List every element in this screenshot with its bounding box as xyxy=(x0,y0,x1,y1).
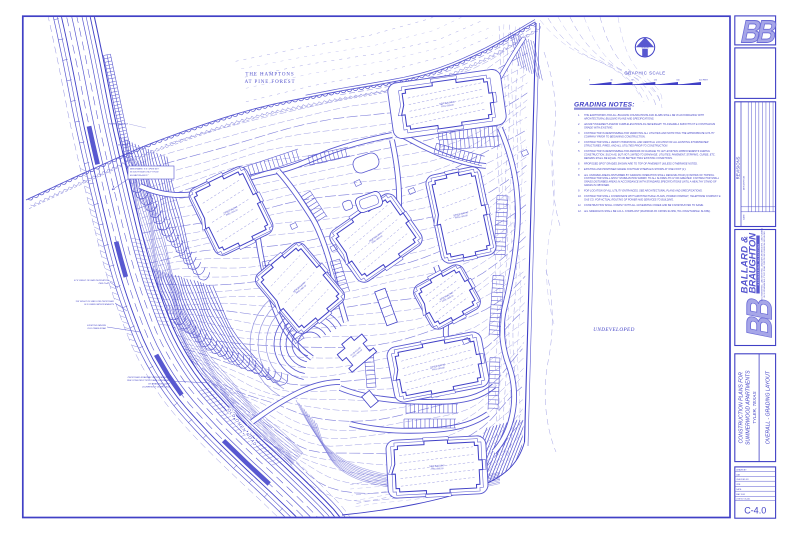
svg-text:1.: 1. xyxy=(578,114,580,117)
svg-text:AT PINE FOREST: AT PINE FOREST xyxy=(245,80,296,85)
svg-text:CONSTRUCTION SHALL COMPLY WITH: CONSTRUCTION SHALL COMPLY WITH ALL GOVER… xyxy=(584,204,704,207)
svg-text:REVISIONS: REVISIONS xyxy=(735,156,740,179)
svg-text:MAY 2005: MAY 2005 xyxy=(736,493,745,496)
svg-text:SUMMERWOOD APARTMENTS: SUMMERWOOD APARTMENTS xyxy=(746,370,752,445)
svg-text:(CURRENTLY OUT TO BID): (CURRENTLY OUT TO BID) xyxy=(142,387,170,389)
svg-text:EXISTING PAVING: EXISTING PAVING xyxy=(87,324,106,327)
svg-text:STRUCTURES, PIPES, AND ALL UTI: STRUCTURES, PIPES, AND ALL UTILITIES PRI… xyxy=(584,145,668,148)
svg-text:FOR LOCATION OF ALL UTILITY EN: FOR LOCATION OF ALL UTILITY ENTRANCES, S… xyxy=(584,190,703,193)
svg-text:5.: 5. xyxy=(578,150,580,153)
svg-text:115' RIGHT OF WAY FOR PROPOSED: 115' RIGHT OF WAY FOR PROPOSED xyxy=(75,300,114,303)
svg-text:C-4.0: C-4.0 xyxy=(744,506,766,516)
svg-text:TYLER, TEXAS: TYLER, TEXAS xyxy=(752,391,757,424)
svg-text:GAS CO. FOR ACTUAL ROUTING OF: GAS CO. FOR ACTUAL ROUTING OF POWER AND … xyxy=(584,199,674,202)
svg-text:BY BRANNON CORP.: BY BRANNON CORP. xyxy=(148,382,170,385)
svg-text:ALL SIDEWALKS SHALL BE A.D.A.: ALL SIDEWALKS SHALL BE A.D.A. COMPLIANT … xyxy=(583,210,711,213)
svg-text:11.: 11. xyxy=(578,204,582,207)
svg-text:GRASS IS OBTAINED.: GRASS IS OBTAINED. xyxy=(584,184,610,187)
svg-text:CHECKED BY:: CHECKED BY: xyxy=(736,479,749,481)
svg-text:OVERALL - GRADING LAYOUT: OVERALL - GRADING LAYOUT xyxy=(765,370,771,444)
svg-text:CONSTRUCTION PLANS FOR: CONSTRUCTION PLANS FOR xyxy=(739,372,745,444)
svg-text:IN SOUTH SIDE UTILITY POLE: IN SOUTH SIDE UTILITY POLE xyxy=(130,172,159,174)
svg-text:ARCHITECTURAL BUILDING PLANS A: ARCHITECTURAL BUILDING PLANS AND SPECIFI… xyxy=(583,118,655,121)
svg-text:616 S. BROADWAY AVE., TYLER, T: 616 S. BROADWAY AVE., TYLER, TEXAS 75701… xyxy=(763,231,766,297)
svg-text:EXISTING AND PROPOSED GRADE CO: EXISTING AND PROPOSED GRADE CONTOUR INTE… xyxy=(584,168,687,171)
svg-text:OLD OMEN IMPROVEMENTS: OLD OMEN IMPROVEMENTS xyxy=(84,304,115,306)
svg-text:PROPOSED ROADWAY IMPROVEMENTS: PROPOSED ROADWAY IMPROVEMENTS xyxy=(128,376,171,379)
svg-text:DRAWN BY:: DRAWN BY: xyxy=(736,468,747,471)
svg-text:300 FEET: 300 FEET xyxy=(699,80,709,82)
svg-text:ELEVATION=560.17': ELEVATION=560.17' xyxy=(130,174,149,177)
svg-text:NORTH: NORTH xyxy=(642,48,649,50)
svg-text:7.: 7. xyxy=(578,168,580,171)
svg-text:DESCRIPTION: DESCRIPTION xyxy=(743,175,745,190)
svg-text:GRADE WITH EXISTING.: GRADE WITH EXISTING. xyxy=(584,127,613,130)
svg-text:E N G I N E E R I N G S U R: E N G I N E E R I N G S U R V E Y I N G xyxy=(758,243,760,285)
svg-text:9.: 9. xyxy=(578,190,580,193)
svg-text:JOB NO: 05-041: JOB NO: 05-041 xyxy=(736,499,750,501)
svg-text:8.: 8. xyxy=(578,174,580,177)
svg-text:DATE: DATE xyxy=(742,214,745,220)
svg-text:GUY WIRE: GUY WIRE xyxy=(118,145,129,147)
svg-text:BENCHMARK: R.R. SPIKE SET: BENCHMARK: R.R. SPIKE SET xyxy=(130,168,160,171)
svg-text:THE HAMPTONS: THE HAMPTONS xyxy=(245,73,294,78)
svg-text:COMPANY PRIOR TO BEGINNING CON: COMPANY PRIOR TO BEGINNING CONSTRUCTION. xyxy=(584,136,646,139)
svg-text:12.: 12. xyxy=(578,210,582,213)
svg-text:4.: 4. xyxy=(578,141,580,144)
svg-text:REPAIRS SHALL BE EQUAL TO OR B: REPAIRS SHALL BE EQUAL TO OR BETTER THAN… xyxy=(584,157,673,160)
svg-text:PROPOSED SPOT GRADES SHOWN ARE: PROPOSED SPOT GRADES SHOWN ARE TO TOP OF… xyxy=(584,163,698,166)
svg-text:UNDEVELOPED: UNDEVELOPED xyxy=(593,327,635,333)
svg-text:PER PLAT: PER PLAT xyxy=(99,282,110,285)
svg-text:POWER CABLE BOX: POWER CABLE BOX xyxy=(109,123,129,126)
svg-text:DATE:: DATE: xyxy=(736,488,742,491)
svg-text:57.5' RIGHT OF WAY DEDICATION: 57.5' RIGHT OF WAY DEDICATION xyxy=(74,279,109,282)
svg-text:3.: 3. xyxy=(578,132,580,135)
svg-text:PER CONSTRUCTION PLANS PREPARE: PER CONSTRUCTION PLANS PREPARED xyxy=(127,379,170,382)
svg-text:OLD OMEN ROAD: OLD OMEN ROAD xyxy=(87,327,106,330)
svg-text:GRAPHIC SCALE: GRAPHIC SCALE xyxy=(624,70,665,75)
svg-text:10.: 10. xyxy=(578,195,582,198)
svg-text:GRADING NOTES:: GRADING NOTES: xyxy=(574,101,635,108)
svg-text:2.: 2. xyxy=(577,123,580,126)
svg-text:6.: 6. xyxy=(578,163,580,166)
